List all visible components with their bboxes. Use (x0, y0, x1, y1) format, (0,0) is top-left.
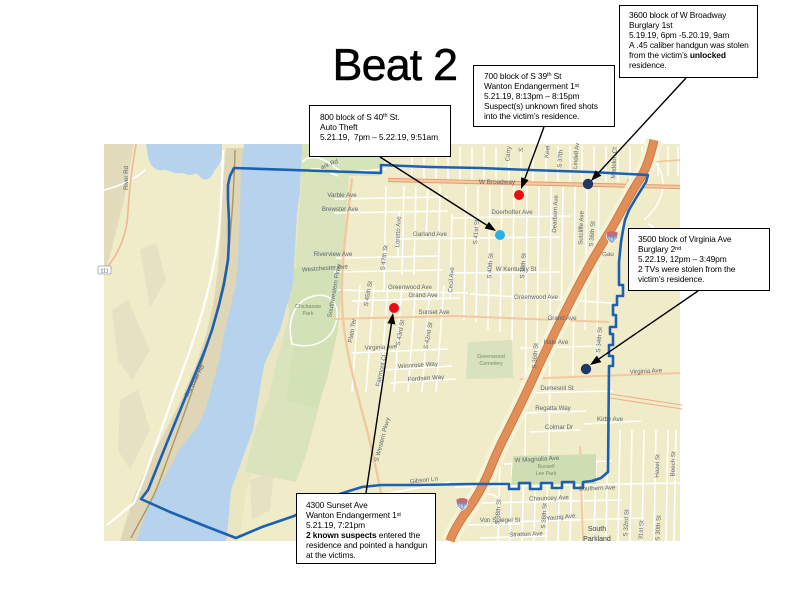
svg-text:W Broadway: W Broadway (479, 179, 516, 186)
svg-text:River Rd: River Rd (123, 165, 130, 190)
svg-text:W Kentucky St: W Kentucky St (496, 266, 537, 273)
svg-text:Lee Park: Lee Park (536, 471, 557, 477)
svg-text:Gau: Gau (602, 251, 614, 258)
svg-text:Cemetery: Cemetery (479, 361, 503, 367)
svg-text:Dumesnil St: Dumesnil St (540, 385, 574, 392)
svg-text:264: 264 (458, 505, 467, 511)
svg-text:Riverview Ave: Riverview Ave (314, 251, 353, 258)
svg-text:Brewster Ave: Brewster Ave (322, 206, 359, 213)
svg-text:Greenwood Ave: Greenwood Ave (388, 284, 432, 291)
svg-text:Sutcliffe Ave: Sutcliffe Ave (577, 210, 585, 245)
svg-text:Stratton Ave: Stratton Ave (509, 530, 543, 538)
svg-text:Beech St: Beech St (670, 451, 678, 477)
svg-text:S 30th St: S 30th St (654, 515, 662, 541)
svg-text:South: South (588, 526, 606, 533)
svg-text:Varble Ave: Varble Ave (327, 192, 357, 199)
svg-text:Greenwood: Greenwood (477, 354, 505, 360)
svg-text:Keel: Keel (543, 145, 551, 158)
svg-text:Parkland: Parkland (583, 536, 611, 543)
svg-text:Sunset Ave: Sunset Ave (418, 309, 450, 316)
svg-text:Colmar Dr: Colmar Dr (545, 424, 573, 431)
svg-text:Greenwood Ave: Greenwood Ave (514, 294, 558, 301)
svg-text:Regatta Way: Regatta Way (535, 405, 571, 412)
svg-text:Kirby Ave: Kirby Ave (597, 416, 624, 423)
svg-text:S: S (518, 147, 525, 152)
svg-text:264: 264 (608, 238, 617, 244)
svg-text:31st St: 31st St (638, 520, 646, 540)
svg-text:Hazel St: Hazel St (654, 454, 662, 478)
svg-text:Grand Ave: Grand Ave (408, 292, 438, 299)
svg-text:Grand Ave: Grand Ave (547, 315, 577, 322)
svg-text:Garland Ave: Garland Ave (413, 231, 447, 238)
svg-text:Russell: Russell (537, 464, 554, 470)
svg-text:Park: Park (302, 311, 313, 317)
svg-text:S 32nd St: S 32nd St (622, 509, 630, 537)
svg-text:Hale Ave: Hale Ave (544, 339, 569, 346)
svg-text:Doerhofter Ave: Doerhofter Ave (491, 209, 533, 216)
svg-text:Chickasaw: Chickasaw (295, 304, 321, 310)
svg-text:111: 111 (100, 269, 108, 275)
svg-text:Chauncey Ave: Chauncey Ave (529, 494, 570, 502)
